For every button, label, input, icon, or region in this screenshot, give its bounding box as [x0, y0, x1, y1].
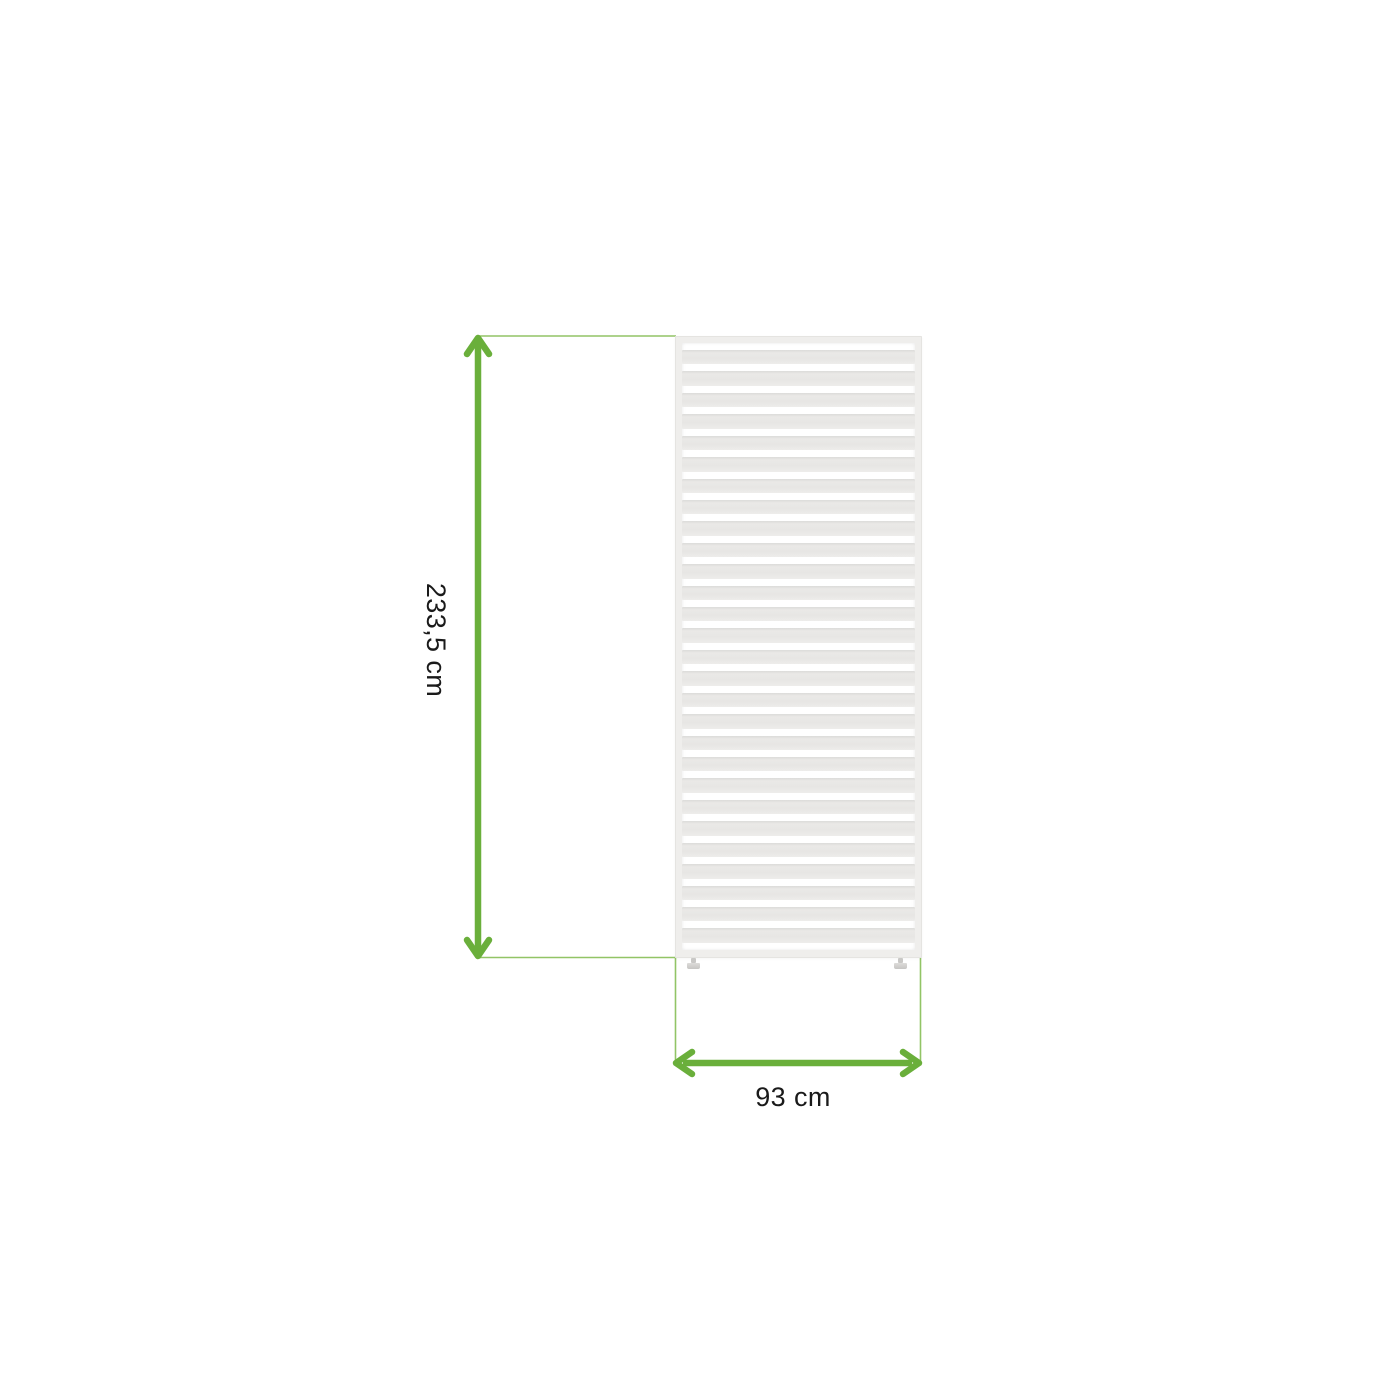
panel-slat	[682, 607, 915, 621]
panel-slat	[682, 436, 915, 450]
slatted-panel	[675, 336, 922, 958]
panel-slat	[682, 350, 915, 364]
diagram-canvas: 233,5 cm 93 cm	[0, 0, 1400, 1400]
panel-slats	[682, 343, 915, 950]
panel-slat	[682, 778, 915, 792]
panel-slat	[682, 564, 915, 578]
panel-slat	[682, 886, 915, 900]
foot-base	[687, 963, 700, 969]
height-dimension-label: 233,5 cm	[420, 560, 452, 720]
panel-foot-right	[894, 958, 907, 969]
panel-slat	[682, 800, 915, 814]
panel-slat	[682, 736, 915, 750]
panel-slat	[682, 650, 915, 664]
panel-slat	[682, 371, 915, 385]
foot-base	[894, 963, 907, 969]
panel-slat	[682, 757, 915, 771]
panel-slat	[682, 479, 915, 493]
panel-slat	[682, 521, 915, 535]
panel-slat	[682, 543, 915, 557]
panel-slat	[682, 414, 915, 428]
panel-slat	[682, 500, 915, 514]
panel-slat	[682, 457, 915, 471]
width-dimension-label: 93 cm	[713, 1081, 873, 1113]
panel-slat	[682, 843, 915, 857]
panel-slat	[682, 393, 915, 407]
panel-foot-left	[687, 958, 700, 969]
panel-slat	[682, 864, 915, 878]
panel-slat	[682, 907, 915, 921]
panel-slat	[682, 586, 915, 600]
panel-slat	[682, 928, 915, 942]
panel-slat	[682, 714, 915, 728]
panel-slat	[682, 628, 915, 642]
panel-slat	[682, 821, 915, 835]
panel-slat	[682, 693, 915, 707]
panel-slat	[682, 671, 915, 685]
